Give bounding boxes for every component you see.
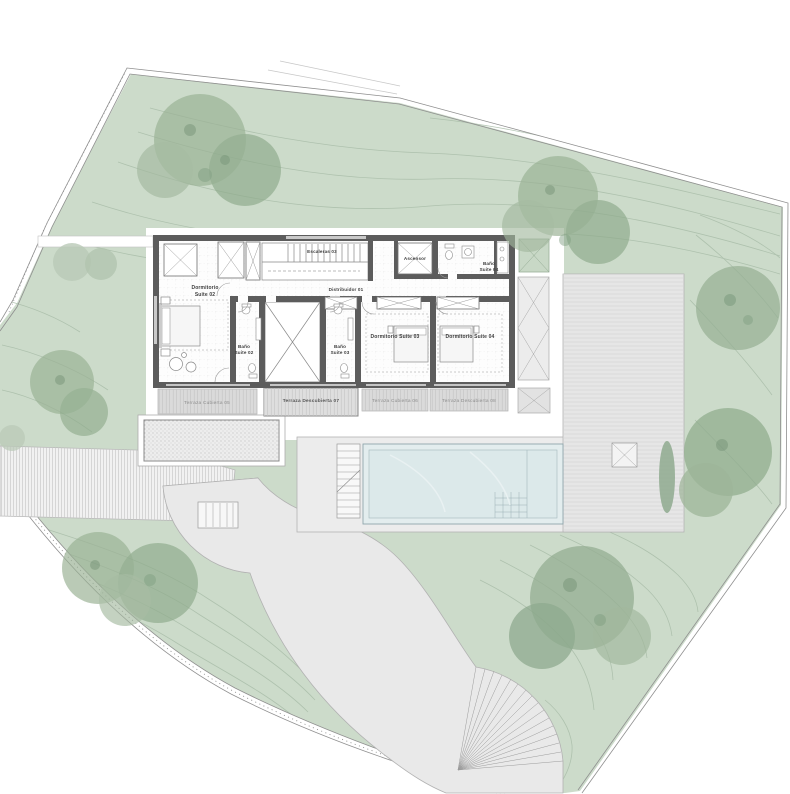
glass-door [270,384,356,386]
label-terraza-descubierta-1: Terraza Descubierta 07 [283,398,340,404]
label-bano-suite-03-line1: Baño [334,344,346,349]
double-height-void [265,302,320,382]
swimming-pool [363,444,563,524]
house-floor-plan: Dormitorio Suite 02 Escaleras 03 Distrib… [153,235,515,416]
toilet [446,251,453,260]
toilet [249,364,256,373]
label-dormitorio-suite-02-line1: Dormitorio [191,285,218,291]
armchair [170,358,183,371]
glass-door [434,384,506,386]
label-bano-suite-02-line2: Suite 02 [235,350,254,355]
label-escaleras: Escaleras 03 [307,249,337,254]
label-bano-suite-02-line1: Baño [238,344,250,349]
label-bano-suite-04-line2: Suite 04 [480,267,499,272]
pouf [186,362,196,372]
site-plan-drawing: Dormitorio Suite 02 Escaleras 03 Distrib… [0,0,790,794]
tree-east [696,266,780,350]
small-stair [198,502,238,528]
sink [465,249,472,256]
tall-skylight [518,277,549,380]
label-bano-suite-03-line2: Suite 03 [331,350,350,355]
glass-door [166,384,250,386]
floor-plan-svg: Dormitorio Suite 02 Escaleras 03 Distrib… [0,0,790,794]
label-dormitorio-suite-02-line2: Suite 02 [195,292,215,298]
planter-hedge [659,441,675,513]
window [154,296,157,344]
small-shrub [0,425,25,451]
toilet [341,364,348,373]
courtyard-patio [138,415,285,466]
pool-stair-ladder [337,444,360,518]
label-ascensor: Ascensor [404,256,426,261]
window [286,236,366,239]
label-terraza-cubierta-2: Terraza Cubierta 06 [372,398,418,404]
label-dormitorio-suite-03: Dormitorio Suite 03 [371,334,420,340]
label-bano-suite-04-line1: Baño [483,261,495,266]
label-distribuidor: Distribuidor 01 [329,287,364,292]
glass-door [366,384,426,386]
label-dormitorio-suite-04: Dormitorio Suite 04 [446,334,495,340]
deck-pergola [612,443,637,467]
label-terraza-descubierta-2: Terraza Descubierta 08 [442,398,496,404]
entry-path [38,236,153,247]
label-terraza-cubierta-1: Terraza Cubierta 05 [184,400,230,406]
